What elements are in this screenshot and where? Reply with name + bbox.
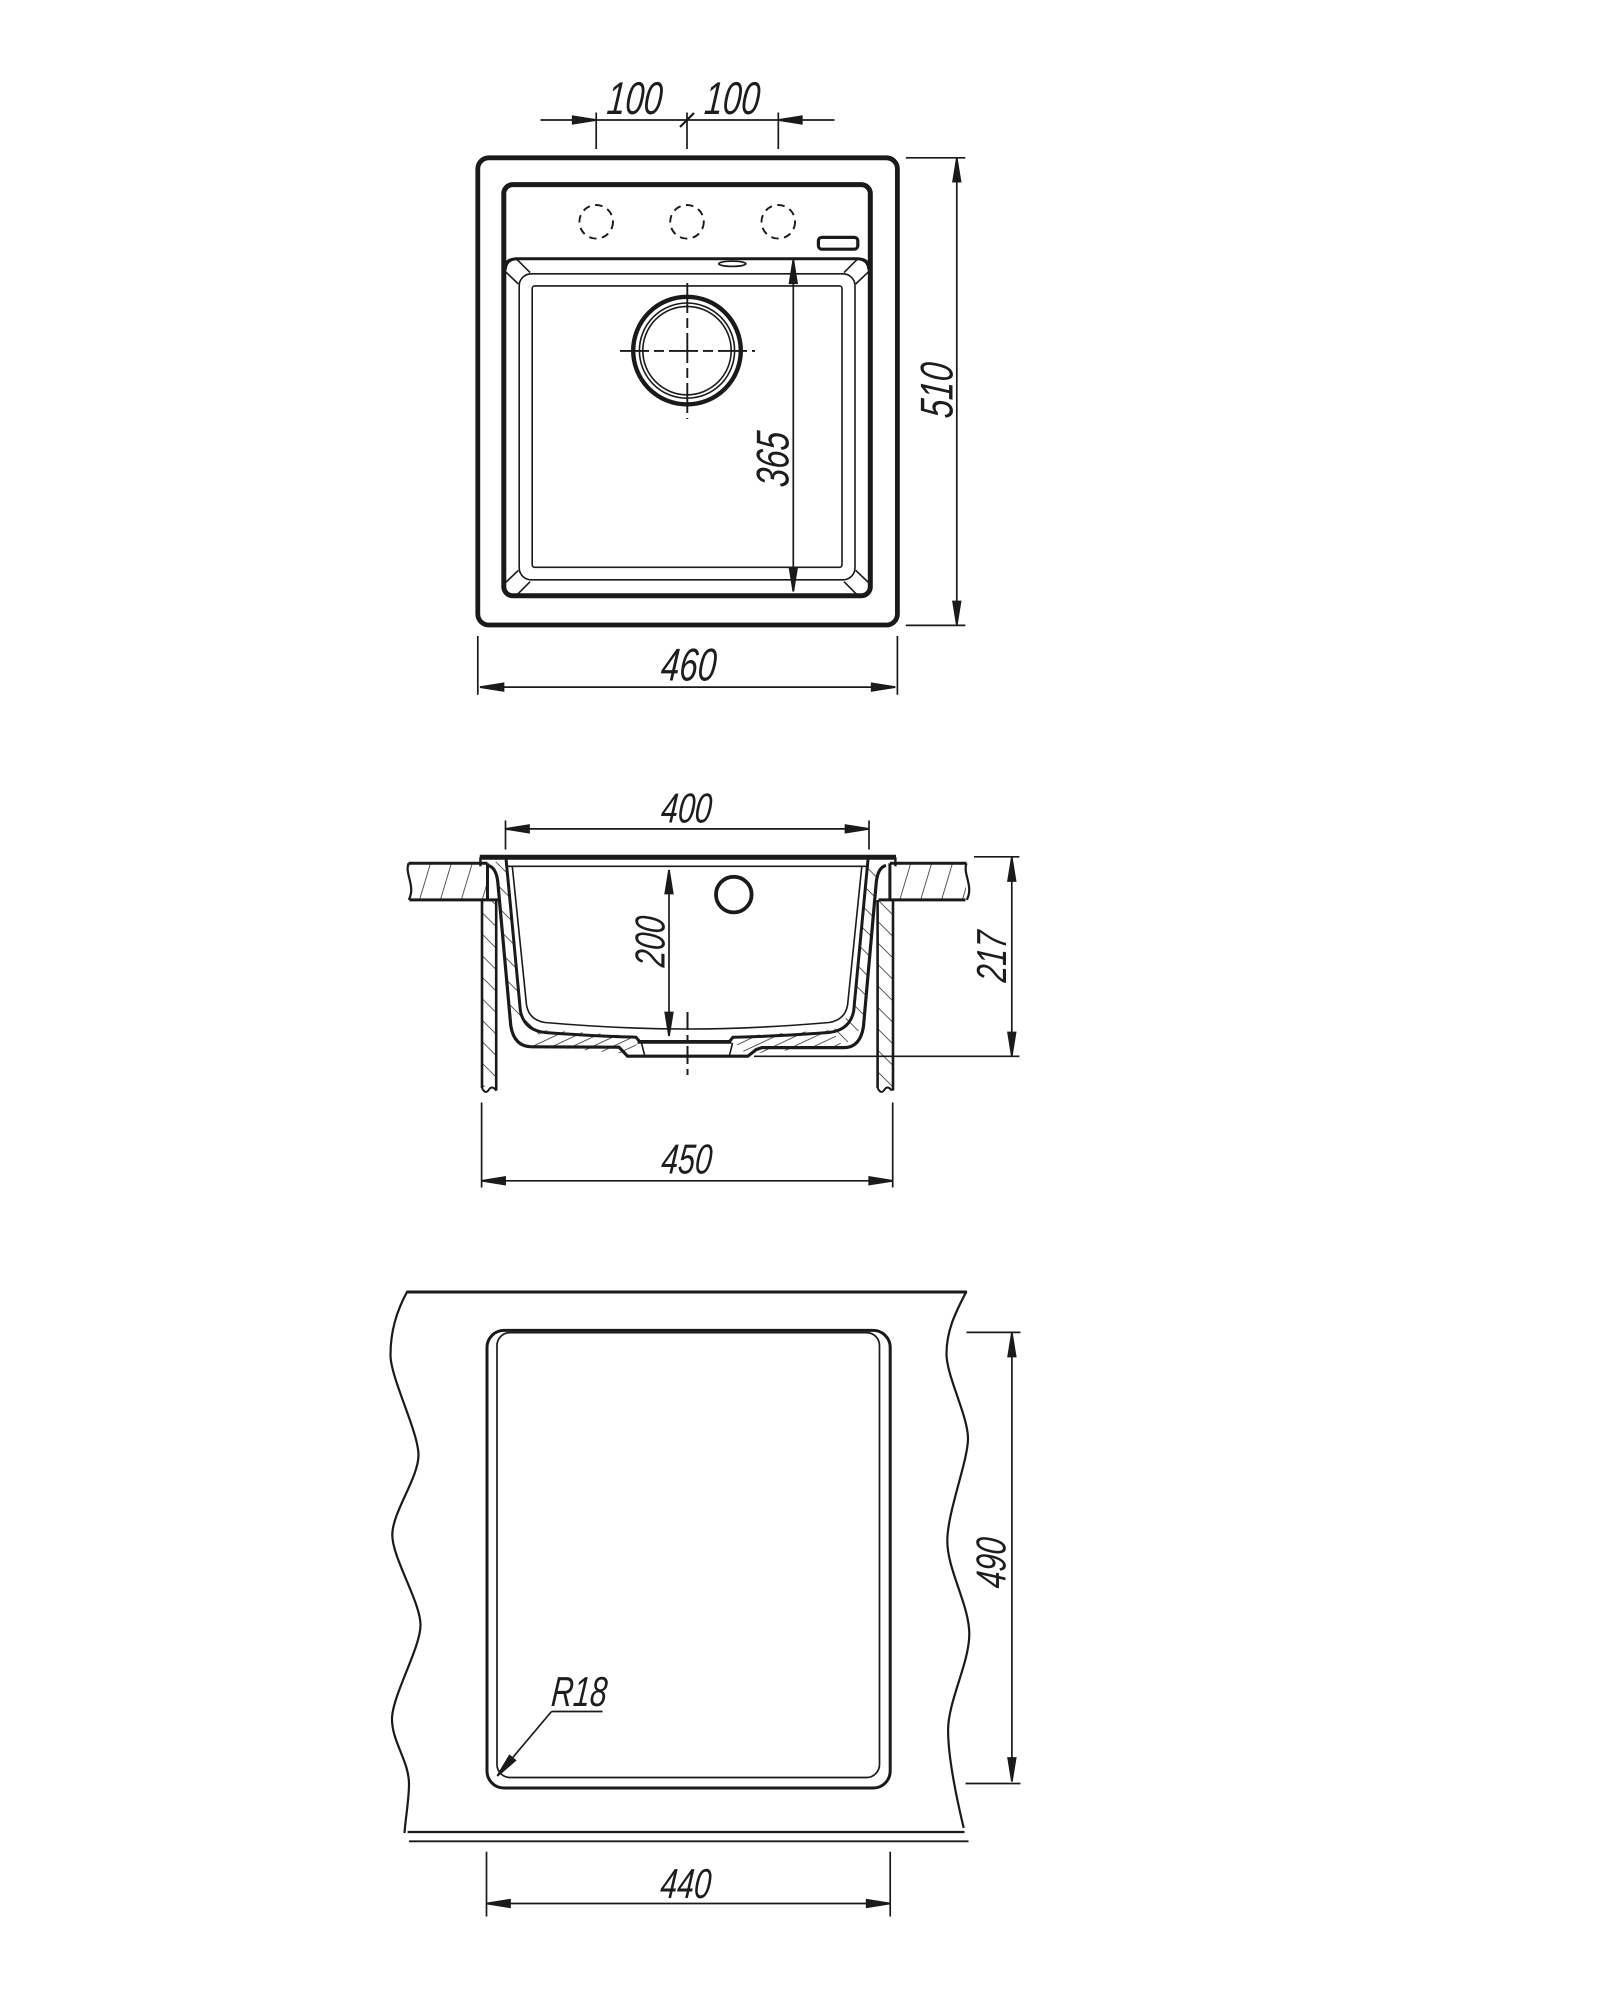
svg-text:450: 450 [660,1136,715,1183]
svg-text:460: 460 [659,639,719,691]
svg-text:440: 440 [659,1860,714,1907]
svg-text:365: 365 [747,429,799,489]
svg-text:200: 200 [627,913,674,969]
svg-text:100: 100 [703,73,763,125]
svg-text:490: 490 [968,1535,1015,1590]
svg-text:400: 400 [659,785,714,832]
svg-text:100: 100 [605,73,665,125]
svg-text:510: 510 [911,360,963,420]
svg-text:R18: R18 [550,1668,610,1715]
svg-text:217: 217 [968,928,1015,985]
